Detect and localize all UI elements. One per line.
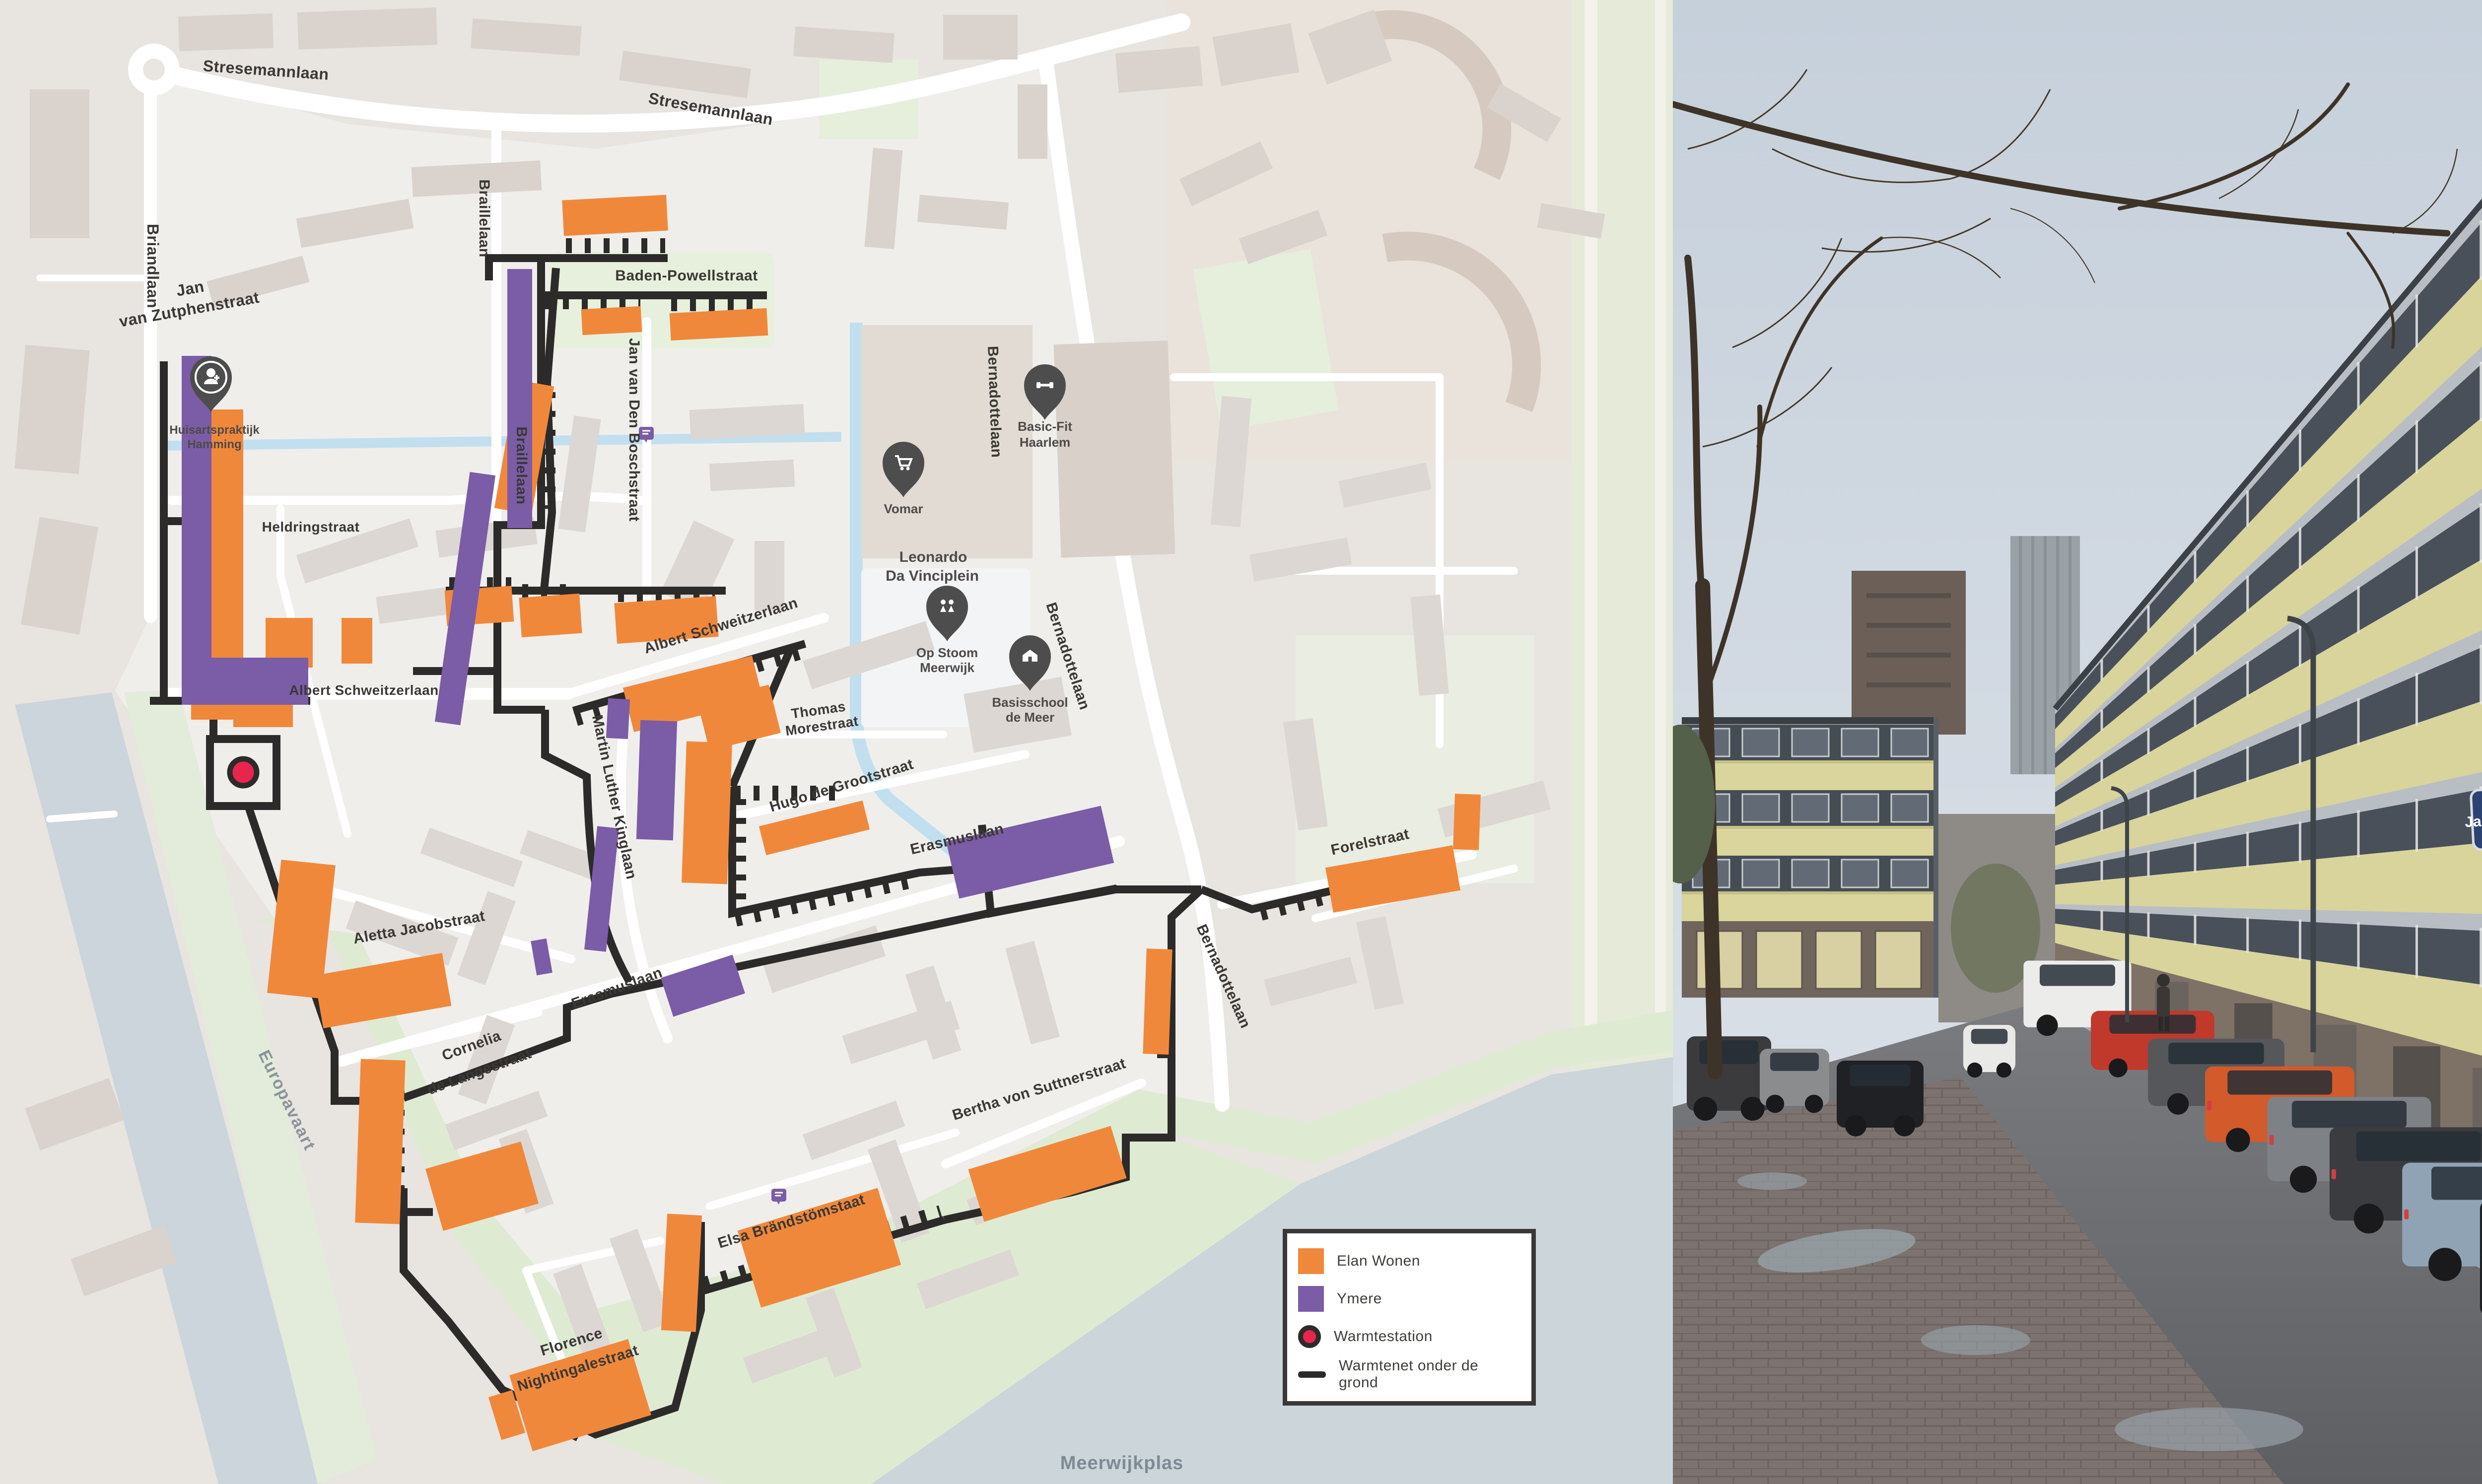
vomar-building: [861, 325, 1033, 558]
building: [297, 7, 437, 50]
screenshot: Huisartspraktijk Hamming Vomar Basic-Fit…: [0, 0, 2482, 1484]
photo-shape: [1742, 794, 1779, 822]
photo-shape: [1842, 729, 1878, 756]
elan-wonen-building: [519, 594, 582, 637]
street-label: Braillelaan: [476, 179, 492, 257]
photo-shape: [1933, 717, 1938, 998]
street-label: Jan van Den Boschstraat: [626, 338, 642, 522]
poi-label: Op Stoom: [916, 645, 978, 660]
photo-shape: [1682, 760, 1938, 763]
building: [709, 460, 795, 491]
photo-shape: [1742, 860, 1779, 887]
elan-wonen-building: [1453, 794, 1481, 850]
photo-shape: [1842, 794, 1878, 822]
legend-label: Elan Wonen: [1337, 1253, 1420, 1270]
elan-wonen-swatch: [1298, 1248, 1324, 1274]
street-label: Braillelaan: [513, 426, 530, 504]
photo-shape: [1792, 860, 1829, 887]
street-label: Baden-Powellstraat: [615, 268, 758, 284]
legend-row: Elan Wonen: [1298, 1247, 1521, 1275]
poi-label: Vomar: [884, 501, 923, 516]
legend: Elan Wonen Ymere Warmtestation Warmtenet…: [1283, 1229, 1536, 1406]
building: [30, 89, 89, 238]
roundabout-center: [143, 59, 165, 80]
photo-shape: [1891, 729, 1928, 756]
photo-shape: [1842, 860, 1878, 887]
photo-shape: [1682, 891, 1938, 894]
elan-wonen-building: [1143, 948, 1172, 1055]
water-label-meerwijkplas: Meerwijkplas: [1060, 1453, 1184, 1474]
photo-shape: [1816, 931, 1861, 989]
warmtenet-swatch: [1298, 1371, 1326, 1378]
poi-label: Leonardo: [899, 549, 967, 565]
photo-shape: [1682, 826, 1938, 856]
basic-fit-building: [1054, 340, 1175, 558]
poi-label: Haarlem: [1020, 435, 1071, 450]
elan-wonen-building: [581, 306, 642, 335]
photo-shape: [1742, 729, 1779, 756]
poi-label: Meerwijk: [920, 660, 974, 675]
street-label: Heldringstraat: [262, 519, 360, 535]
elan-wonen-building: [355, 1059, 405, 1224]
building: [14, 345, 89, 474]
warmtestation-marker: [230, 759, 257, 786]
photo-shape: [1682, 891, 1938, 921]
elan-wonen-building: [682, 741, 732, 884]
photo-shape: [1682, 826, 1938, 829]
elan-wonen-building: [562, 195, 668, 236]
ymere-building: [606, 698, 630, 739]
poi-label: Da Vinciplein: [886, 568, 979, 584]
apartment-wing: [1682, 717, 1938, 998]
elan-wonen-building: [661, 1214, 702, 1332]
building: [943, 15, 1018, 60]
building: [1115, 46, 1203, 93]
parked-car: [2402, 1163, 2482, 1281]
photo-shape: [1792, 729, 1829, 756]
legend-label: Warmtestation: [1334, 1328, 1433, 1345]
street-label: Albert Schweitzerlaan: [289, 682, 438, 698]
photo-shape: [1756, 931, 1802, 989]
ymere-swatch: [1298, 1286, 1324, 1312]
legend-label: Warmtenet onder de grond: [1339, 1357, 1521, 1391]
building: [1018, 84, 1047, 159]
poi-label: de Meer: [1006, 710, 1054, 725]
photo-shape: [1682, 760, 1938, 790]
building: [178, 13, 274, 52]
photo-shape: [1792, 794, 1829, 822]
photo-shape: [1891, 794, 1928, 822]
ymere-building: [636, 720, 677, 840]
parked-car: [1963, 1025, 2015, 1078]
parked-car: [1687, 1036, 1771, 1121]
elan-wonen-building: [670, 308, 768, 340]
legend-row: Ymere: [1298, 1285, 1521, 1313]
legend-row: Warmtestation: [1298, 1323, 1521, 1350]
street-label: Briandlaan: [144, 224, 162, 308]
poi-label: Basisschool: [992, 695, 1068, 710]
elan-wonen-building: [342, 618, 372, 664]
street-photo: Jan van Zutphenstraat: [1673, 0, 2482, 1484]
poi-label: Huisartspraktijk: [169, 423, 260, 437]
photo-shape: [1682, 717, 1938, 724]
photo-shape: [1875, 931, 1921, 989]
legend-row: Warmtenet onder de grond: [1298, 1360, 1521, 1388]
parked-car: [1837, 1061, 1924, 1137]
building: [689, 404, 805, 440]
warmtestation-swatch: [1298, 1325, 1321, 1348]
legend-label: Ymere: [1337, 1290, 1382, 1307]
parked-car: [1760, 1049, 1829, 1113]
poi-label: Basic-Fit: [1018, 419, 1072, 434]
photo-shape: [1891, 860, 1928, 887]
poi-label: Hamming: [187, 438, 241, 451]
